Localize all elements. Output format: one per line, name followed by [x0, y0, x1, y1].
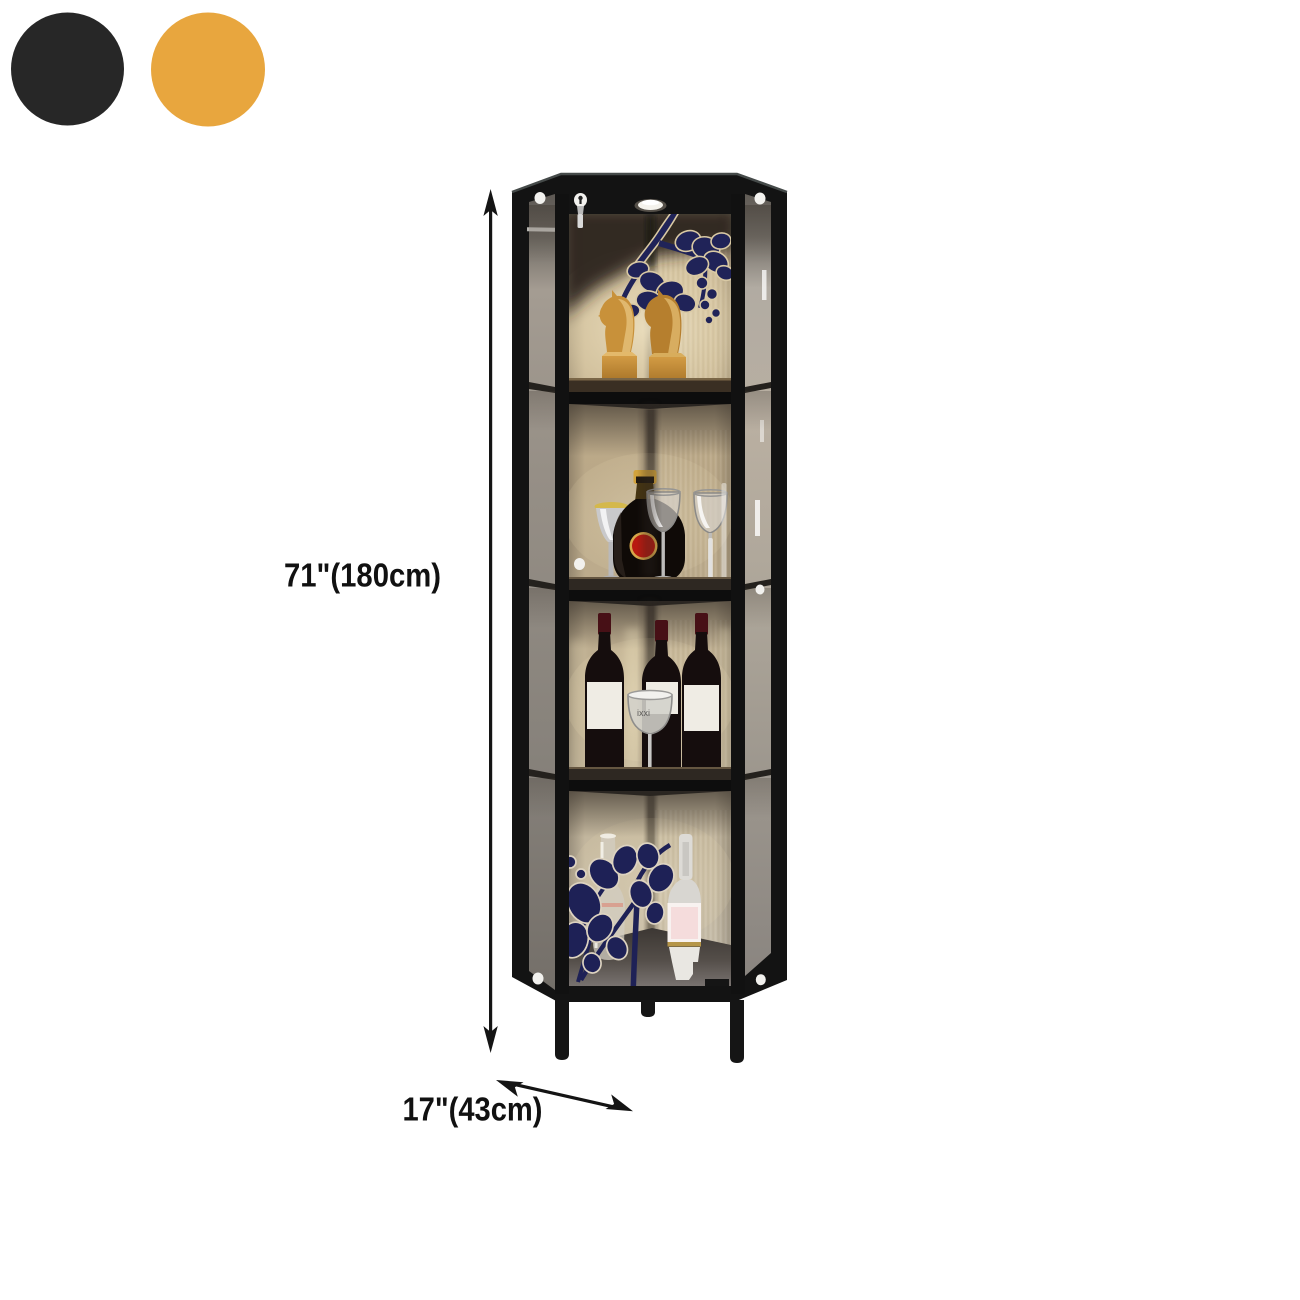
svg-text:17"(43cm): 17"(43cm) [403, 1091, 543, 1128]
svg-text:ixxi: ixxi [637, 708, 650, 718]
svg-text:71"(180cm): 71"(180cm) [284, 557, 441, 594]
